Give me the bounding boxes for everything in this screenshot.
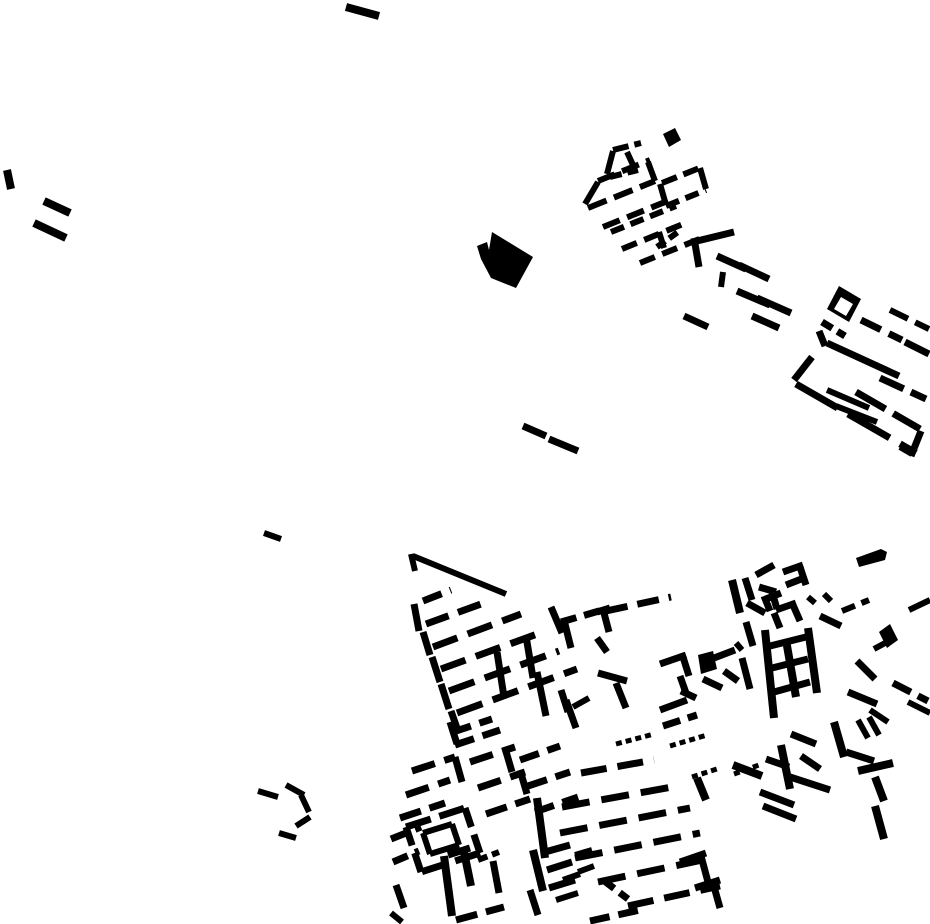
wall-segment [905, 342, 929, 354]
wall-segment [549, 880, 575, 888]
wall-segment [286, 785, 304, 795]
wall-segment [739, 265, 769, 279]
wall-segment [732, 580, 740, 613]
wall-segment [455, 757, 462, 782]
wall-segment [808, 597, 815, 603]
wall-segment [701, 856, 708, 882]
wall-segment [742, 658, 750, 689]
site-plan-page [0, 0, 930, 924]
wall-segment [616, 683, 626, 708]
wall-segment [770, 637, 806, 646]
wall-segment [561, 609, 606, 622]
wall-segment [700, 168, 706, 189]
wall-segment [714, 650, 735, 658]
wall-segment [662, 167, 702, 183]
wall-segment [296, 817, 310, 826]
wall-segment [759, 587, 776, 592]
wall-segment [607, 151, 613, 174]
wall-segment [493, 861, 499, 893]
wall-segment [822, 322, 845, 336]
wall-segment [684, 316, 708, 327]
wall-segment [478, 852, 499, 860]
wall-segment [848, 692, 877, 704]
wall-segment [423, 833, 430, 854]
wall-segment [834, 722, 844, 757]
wall-segment [585, 182, 598, 204]
wall-segment [752, 316, 779, 328]
wall-segment [34, 223, 66, 238]
wall-segment [551, 607, 562, 633]
wall-segment [697, 778, 706, 800]
wall-segment [613, 143, 641, 150]
wall-segment [563, 874, 580, 880]
wall-segment [660, 700, 687, 710]
wall-segment [562, 787, 672, 807]
wall-segment [772, 659, 808, 668]
wall-segment [528, 772, 570, 786]
wall-segment [413, 556, 506, 594]
wall-segment [523, 426, 546, 436]
wall-segment [598, 858, 712, 882]
wall-segment [497, 652, 504, 697]
wall-segment [561, 690, 568, 712]
wall-segment [786, 578, 804, 585]
wall-segment [663, 715, 697, 726]
wall-segment [406, 780, 450, 795]
wall-segment [545, 845, 570, 852]
wall-segment [909, 600, 930, 610]
wall-segment [724, 671, 738, 681]
wall-segment [414, 604, 419, 631]
wall-segment [556, 893, 578, 900]
wall-segment [846, 752, 874, 761]
wall-segment [869, 717, 879, 735]
wall-segment [774, 682, 810, 692]
wall-segment [627, 152, 633, 165]
wall-segment [426, 604, 481, 624]
wall-segment [670, 735, 707, 746]
wall-segment [530, 890, 538, 915]
wall-segment [703, 679, 722, 688]
large-solid-building [477, 232, 533, 288]
wall-segment [791, 734, 816, 744]
wall-segment [697, 232, 734, 241]
wall-segment [648, 162, 655, 181]
wall-segment [406, 827, 421, 872]
wall-segment [880, 378, 926, 399]
wall-segment [520, 746, 560, 760]
wall-segment [590, 910, 640, 921]
wall-segment [597, 638, 607, 652]
wall-segment [423, 824, 452, 833]
wall-segment [412, 757, 455, 771]
wall-segment [391, 913, 402, 922]
wall-segment [411, 554, 415, 571]
wall-segment [423, 632, 430, 655]
wall-segment [908, 702, 930, 713]
wall-segment [396, 885, 404, 908]
wall-segment [616, 734, 654, 744]
wall-segment [441, 684, 449, 709]
wall-segment [432, 657, 440, 682]
wall-segment [760, 792, 794, 805]
wall-segment [444, 856, 452, 916]
wall-segment [858, 763, 893, 771]
wall-segment [794, 357, 812, 380]
wall-segment [573, 698, 589, 707]
wall-segment [604, 613, 609, 632]
wall-segment [423, 590, 451, 601]
wall-segment [486, 799, 530, 814]
wall-segment [747, 603, 765, 613]
small-solid-square-north [663, 128, 681, 147]
wall-segment [757, 298, 791, 313]
wall-segment [858, 720, 868, 738]
wall-segment [279, 833, 296, 838]
wall-segment [763, 806, 796, 819]
wall-segment [560, 808, 690, 833]
building-footprint-map [0, 0, 930, 924]
wall-segment [793, 605, 800, 621]
wall-segment [746, 622, 753, 646]
wall-segment [7, 170, 11, 189]
wall-segment [606, 597, 671, 611]
wall-segment [820, 616, 841, 626]
wall-segment [774, 613, 780, 628]
wall-segment [827, 343, 899, 376]
thick-bar-northeast [856, 549, 887, 567]
wall-segment [790, 777, 830, 790]
wall-segment [745, 578, 752, 600]
wall-segment [683, 657, 689, 676]
wall-segment [824, 594, 831, 601]
wall-segment [44, 201, 70, 213]
wall-segment [681, 691, 696, 698]
wall-segment [346, 7, 379, 16]
wall-segment [258, 791, 278, 797]
wall-segment [875, 777, 884, 801]
wall-segment [603, 880, 628, 899]
wall-segment [781, 745, 790, 789]
wall-segment [819, 331, 825, 346]
wall-segment [581, 760, 654, 773]
wall-segment [526, 636, 533, 678]
wall-segment [400, 803, 445, 818]
wall-segment [875, 806, 884, 839]
wall-segment [890, 310, 929, 329]
wall-segment [575, 833, 700, 858]
wall-segment [861, 320, 902, 340]
wall-segment [628, 886, 720, 906]
wall-segment [721, 272, 723, 287]
wall-segment [520, 770, 527, 794]
wall-segment [598, 673, 627, 681]
wall-segment [578, 866, 594, 872]
wall-segment [452, 824, 459, 845]
wall-segment [301, 795, 309, 812]
wall-segment [456, 907, 504, 920]
wall-segment [549, 439, 578, 451]
wall-segment [857, 661, 875, 679]
wall-segment [666, 190, 706, 206]
wall-segment [264, 533, 281, 539]
wall-segment [893, 683, 928, 701]
wall-segment [801, 756, 820, 769]
wall-segment [842, 600, 869, 611]
wall-segment [756, 565, 774, 575]
wall-segment [547, 862, 572, 870]
wall-segment [564, 620, 571, 648]
wall-segment [692, 768, 720, 777]
wall-segment [736, 643, 742, 650]
